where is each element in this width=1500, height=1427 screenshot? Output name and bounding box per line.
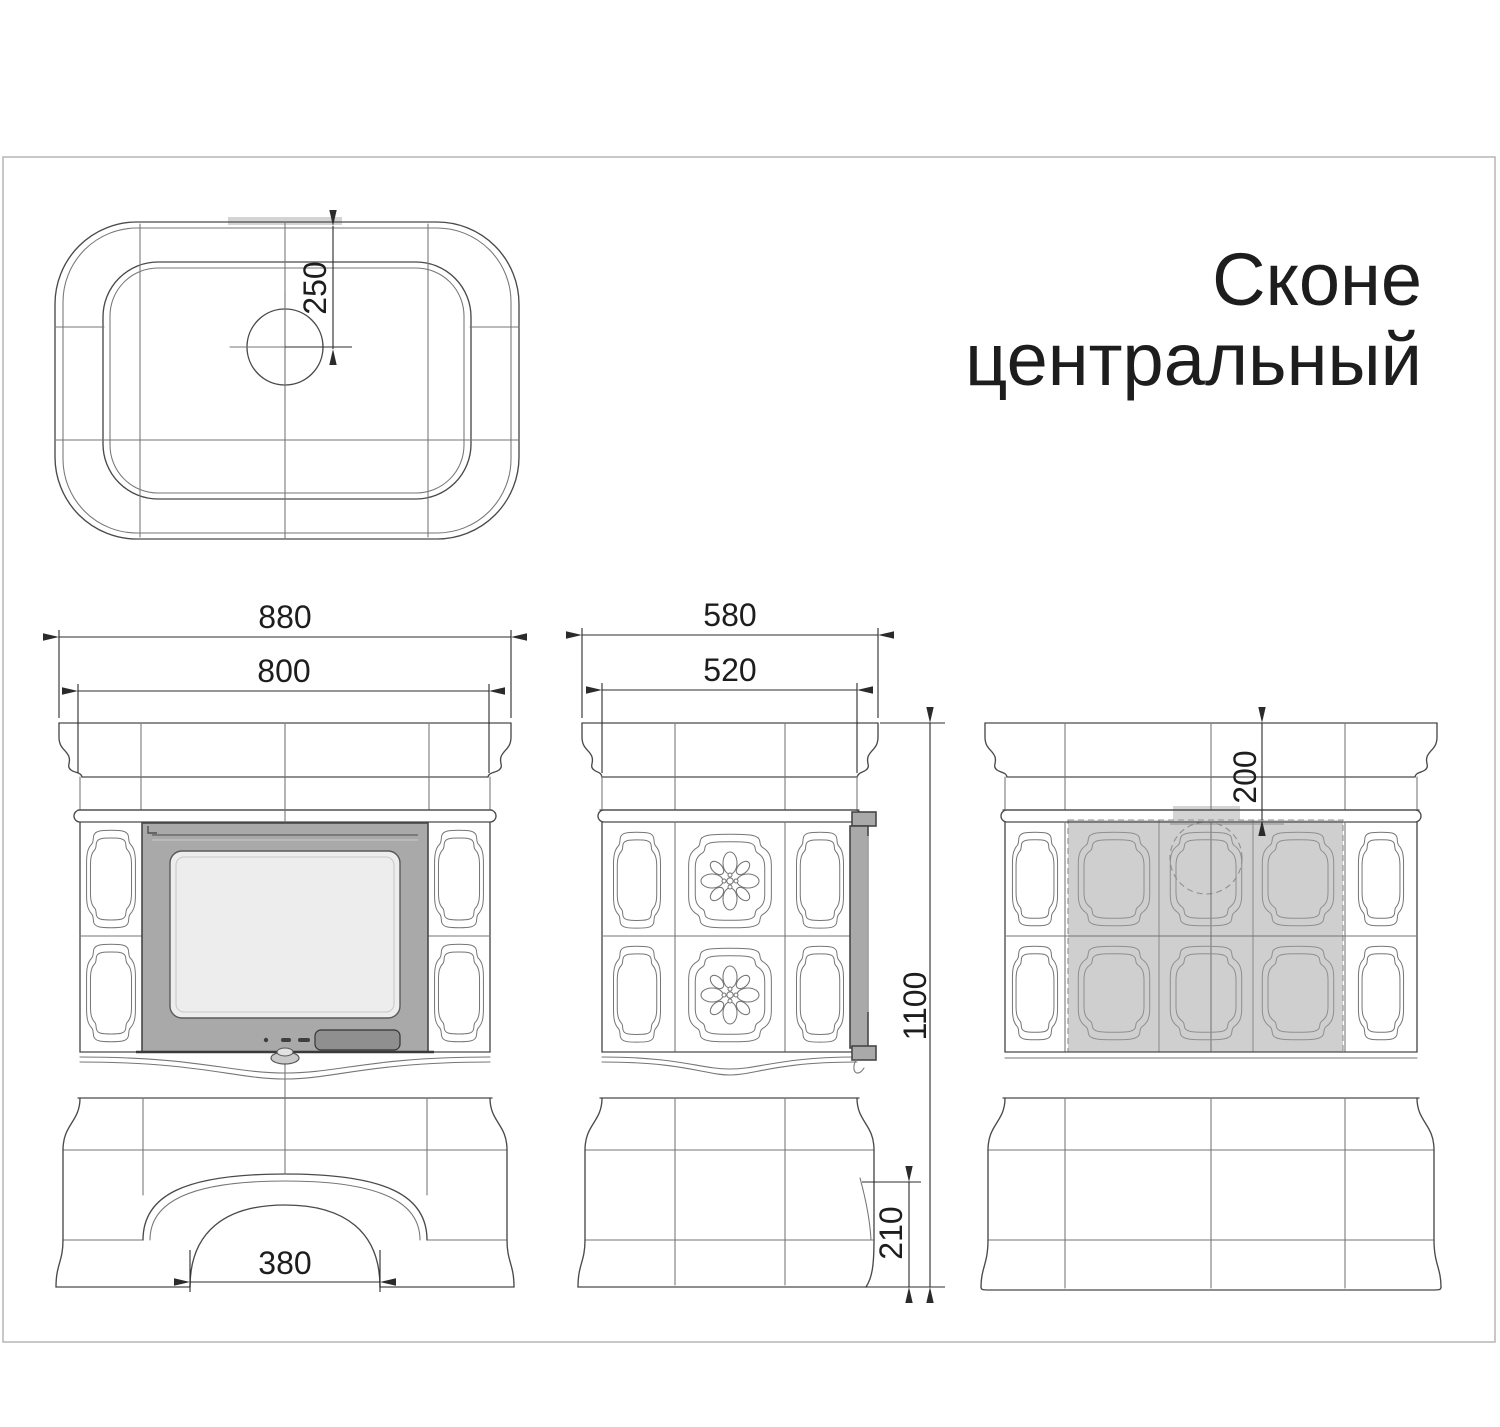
dim-label-1100: 1100 xyxy=(897,972,933,1041)
dim-front-body: 800 xyxy=(78,653,489,773)
dim-label-200: 200 xyxy=(1227,750,1263,803)
door-glass xyxy=(170,851,400,1018)
front-view: 880 800 380 xyxy=(56,599,514,1292)
door-handle-plate xyxy=(315,1030,400,1050)
dim-side-body: 520 xyxy=(602,652,857,773)
door-side-profile xyxy=(850,812,876,1073)
dim-label-520: 520 xyxy=(703,652,756,688)
title-line-1: Сконе xyxy=(965,240,1422,320)
dim-top-flue-offset: 250 xyxy=(285,226,352,349)
technical-drawing: 250 xyxy=(0,0,1500,1427)
title-line-2: центральный xyxy=(965,320,1422,400)
dim-label-580: 580 xyxy=(703,597,756,633)
air-vent-dot xyxy=(264,1038,268,1042)
fire-door xyxy=(136,823,434,1064)
drawing-sheet: 250 xyxy=(0,0,1500,1427)
side-view: 580 520 1100 210 xyxy=(578,597,945,1287)
top-view: 250 xyxy=(55,217,519,539)
back-view: 200 xyxy=(981,723,1441,1290)
dim-label-880: 880 xyxy=(258,599,311,635)
drawing-title: Сконе центральный xyxy=(965,240,1422,400)
dim-label-210: 210 xyxy=(873,1206,909,1259)
dim-back-flue-offset: 200 xyxy=(1227,723,1263,820)
dim-label-800: 800 xyxy=(257,653,310,689)
dim-height-overall: 1100 xyxy=(866,723,945,1287)
dim-arch-width: 380 xyxy=(190,1245,380,1292)
dim-label-380: 380 xyxy=(258,1245,311,1281)
dim-label-250: 250 xyxy=(297,261,333,314)
